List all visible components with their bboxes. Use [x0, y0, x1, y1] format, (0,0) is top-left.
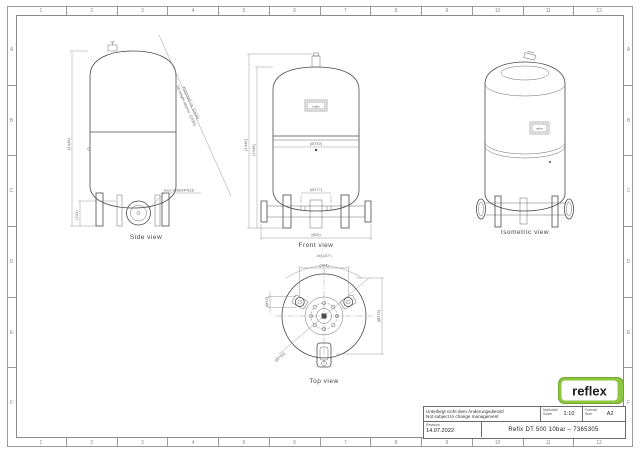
grid-label: 5 — [218, 6, 269, 15]
leg — [341, 195, 349, 228]
grid-label: D — [624, 226, 633, 297]
grid-label: 3 — [117, 6, 168, 15]
grid-label: A — [624, 15, 633, 85]
grid-label: E — [7, 297, 16, 368]
air-valve — [524, 51, 536, 60]
scale-label: Maßstab/ Scale — [543, 408, 558, 420]
dim-top-hole: (Ø13) — [264, 296, 269, 307]
air-valve — [312, 56, 320, 67]
leg — [495, 196, 501, 227]
grid-label: C — [624, 155, 633, 226]
leg — [283, 195, 291, 228]
grid-label: 7 — [320, 438, 371, 447]
scale-value: 1:10 — [558, 408, 580, 420]
nameplate-text: reflex — [536, 127, 544, 131]
grid-label: D — [7, 226, 16, 297]
grid-label: 10 — [472, 6, 523, 15]
grid-label: 2 — [66, 6, 117, 15]
revision-date: 14.07.2022 — [426, 428, 479, 434]
scale-cell: Maßstab/ Scale 1:10 — [541, 407, 583, 421]
front-view-dimensions: [1446] (1346) (Ø740) (Ø177) (600) Front … — [243, 54, 371, 249]
dim-front-conn-width: (Ø177) — [310, 187, 323, 192]
grid-label: 12 — [573, 6, 624, 15]
dim-side-conn-height: (215) — [74, 210, 79, 220]
grid-ruler-bottom: 1 2 3 4 5 6 7 8 9 10 11 12 — [16, 438, 624, 447]
isometric-view-caption: Isometric view — [501, 229, 549, 236]
nameplate-text: reflex — [312, 104, 320, 108]
grid-label: 11 — [523, 6, 574, 15]
grid-label: 3 — [117, 438, 168, 447]
grid-label: B — [624, 85, 633, 156]
grid-label: 1 — [16, 438, 66, 447]
duo-flange — [365, 201, 371, 222]
grid-label: 7 — [320, 6, 371, 15]
dim-tilt: Kippmaß ca. (1530) Tilt height approx. (… — [175, 82, 203, 127]
grid-label: 4 — [167, 6, 218, 15]
air-valve — [108, 45, 117, 51]
grid-label: 2 — [66, 438, 117, 447]
top-view: 3x(120°) (494) (Ø13) (Ø740) (Ø575) Top v… — [256, 248, 396, 388]
leg-pad — [291, 295, 308, 310]
dim-front-inner-height: (1346) — [251, 144, 256, 156]
format-label: Format/ Size — [585, 408, 597, 420]
top-view-caption: Top view — [309, 378, 338, 385]
grid-label: B — [7, 85, 16, 156]
grid-ruler-right: A B C D E F — [624, 15, 633, 438]
grid-label: 11 — [523, 438, 574, 447]
grid-label: 8 — [370, 6, 421, 15]
dim-connection-label: Duo DN80/PN16 — [164, 188, 195, 193]
revision-cell: Revision 14.07.2022 — [424, 422, 482, 437]
logo-text: reflex — [572, 384, 607, 399]
change-management-note: Unterliegt nicht dem Änderungsdienst/ No… — [424, 407, 541, 421]
side-view-caption: Side view — [130, 234, 162, 241]
grid-label: A — [7, 15, 16, 85]
top-view-tank — [276, 268, 372, 367]
grid-label: 4 — [167, 438, 218, 447]
format-cell: Format/ Size A2 — [583, 407, 625, 421]
grid-label: 9 — [421, 438, 472, 447]
drawing-sheet: 1 2 3 4 5 6 7 8 9 10 11 12 1 2 3 4 5 6 7… — [0, 0, 640, 453]
dim-front-outer-height: [1446] — [243, 139, 248, 150]
grid-ruler-left: A B C D E F — [7, 15, 16, 438]
isometric-tank: reflex — [477, 51, 574, 227]
grid-label: 8 — [370, 438, 421, 447]
dim-front-diameter: (Ø740) — [310, 141, 323, 146]
reflex-logo: reflex — [558, 377, 624, 404]
side-view: [1446] (215) Kippmaß ca. (1530) Tilt hei… — [58, 28, 238, 243]
grid-label: 6 — [269, 438, 320, 447]
drawing-title: Refix DT 500 10bar – 7365305 — [482, 422, 625, 437]
dim-top-leg-span: (494) — [319, 263, 329, 268]
title-block: Unterliegt nicht dem Änderungsdienst/ No… — [423, 406, 626, 439]
grid-label: 9 — [421, 6, 472, 15]
change-note-line2: Not subject to change management — [426, 414, 538, 420]
dim-top-diameter: (Ø740) — [273, 351, 286, 363]
grid-label: 1 — [16, 6, 66, 15]
front-view: reflex [1446] (1346) — [243, 50, 383, 248]
duo-pipe — [267, 206, 365, 217]
grid-label: 6 — [269, 6, 320, 15]
grid-label: F — [7, 367, 16, 438]
dim-top-leg-circle: (Ø575) — [376, 309, 381, 322]
grid-label: 10 — [472, 438, 523, 447]
leg — [162, 193, 169, 226]
isometric-view: reflex Isometric view — [468, 46, 583, 238]
duo-flange — [127, 201, 151, 225]
format-value: A2 — [597, 408, 623, 420]
leg-pad — [340, 295, 357, 310]
grid-label: E — [624, 297, 633, 368]
grid-label: 5 — [218, 438, 269, 447]
grid-label: 12 — [573, 438, 624, 447]
dim-top-angle: 3x(120°) — [316, 253, 332, 258]
dim-side-height: [1446] — [66, 138, 71, 149]
leg — [552, 196, 558, 227]
dim-front-base-width: (600) — [311, 232, 321, 237]
duo-flange — [261, 201, 267, 222]
front-fitting — [315, 149, 317, 151]
grid-ruler-top: 1 2 3 4 5 6 7 8 9 10 11 12 — [16, 6, 624, 15]
side-view-dimensions: [1446] (215) Kippmaß ca. (1530) Tilt hei… — [66, 35, 231, 241]
revision-label: Revision — [426, 423, 479, 427]
grid-label: C — [7, 155, 16, 226]
leg — [96, 193, 103, 226]
side-view-tank — [88, 42, 176, 226]
